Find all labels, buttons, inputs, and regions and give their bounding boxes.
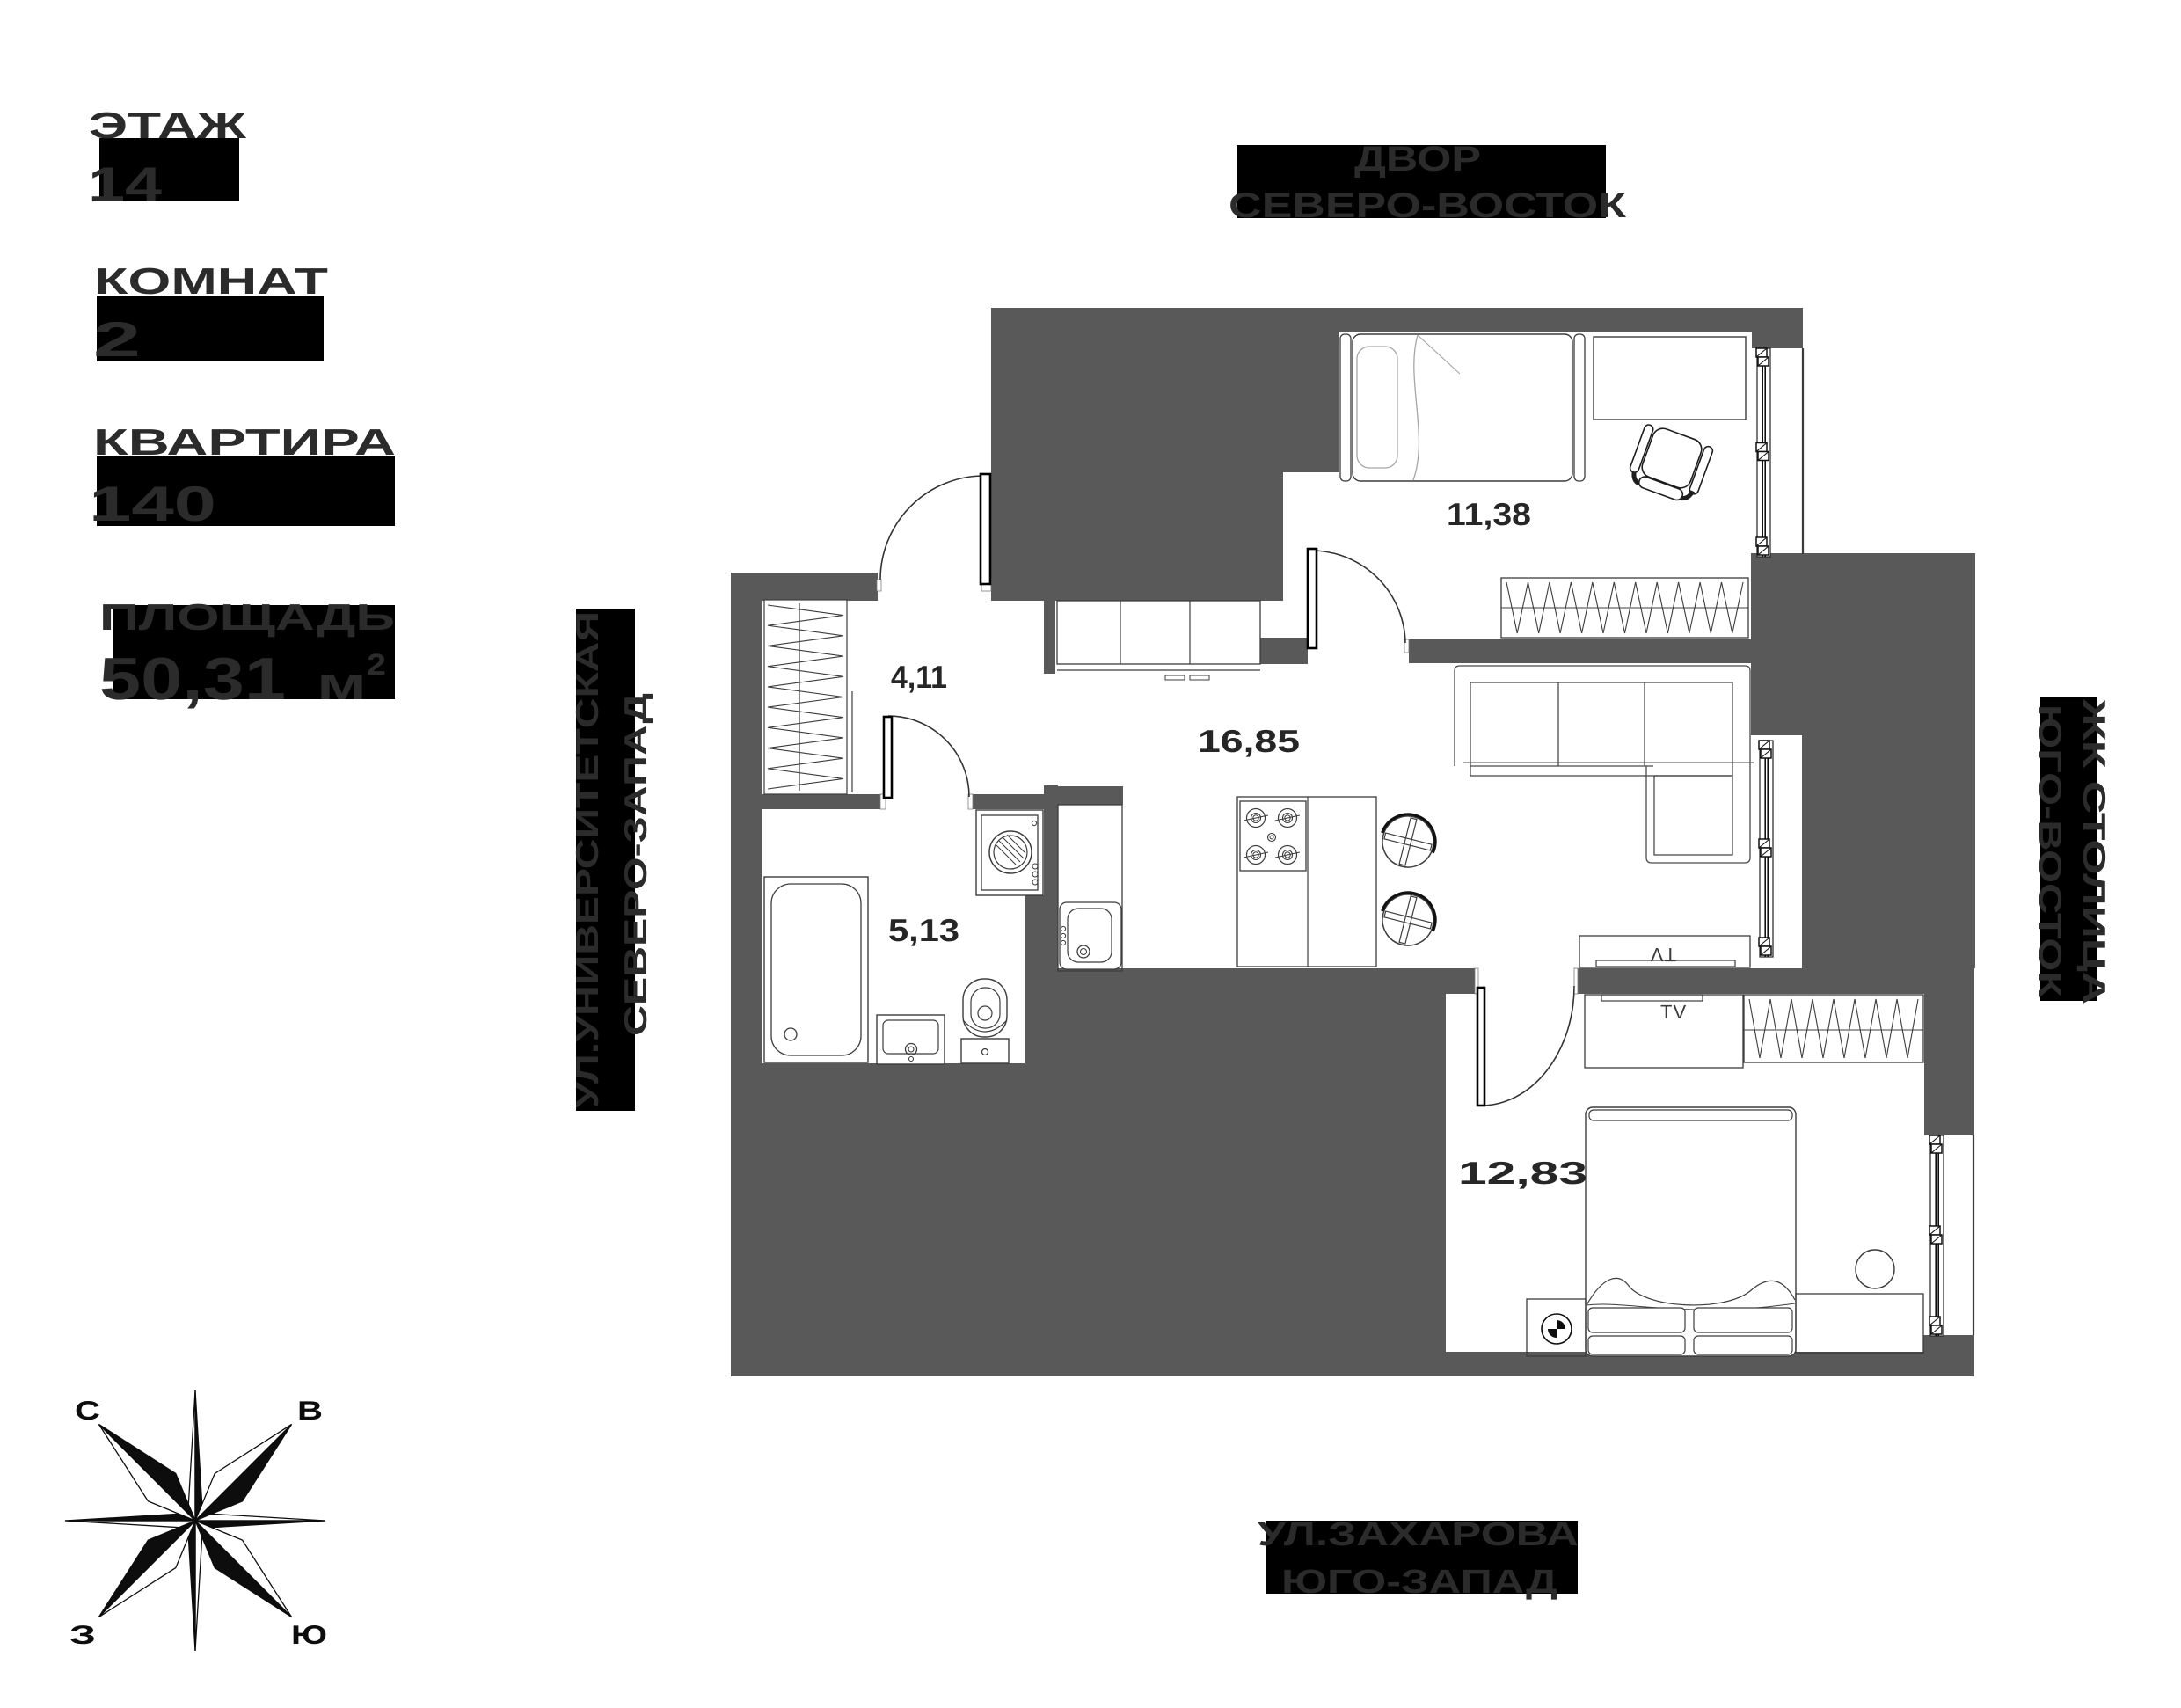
svg-text:5,13: 5,13	[888, 912, 959, 948]
svg-text:11,38: 11,38	[1447, 496, 1531, 532]
svg-text:КОМНАТ: КОМНАТ	[94, 260, 329, 302]
svg-text:4,11: 4,11	[891, 659, 947, 695]
svg-text:СЕВЕРО-ЗАПАД: СЕВЕРО-ЗАПАД	[617, 693, 653, 1036]
svg-text:З: З	[69, 1621, 96, 1650]
svg-text:Ю: Ю	[291, 1621, 327, 1650]
svg-text:TV: TV	[1660, 1001, 1687, 1023]
svg-text:12,83: 12,83	[1458, 1155, 1587, 1191]
svg-text:СЕВЕРО-ВОСТОК: СЕВЕРО-ВОСТОК	[1229, 186, 1627, 225]
svg-text:16,85: 16,85	[1198, 723, 1300, 759]
svg-text:ДВОР: ДВОР	[1354, 140, 1481, 179]
svg-text:м: м	[317, 659, 367, 710]
svg-text:ЮГО-ЗАПАД: ЮГО-ЗАПАД	[1281, 1564, 1557, 1601]
svg-text:2: 2	[93, 311, 141, 367]
svg-text:УЛ.ЗАХАРОВА: УЛ.ЗАХАРОВА	[1258, 1516, 1579, 1553]
svg-text:ЮГО-ВОСТОК: ЮГО-ВОСТОК	[2032, 704, 2068, 998]
svg-text:УЛ.УНИВЕРСИТЕТСКАЯ: УЛ.УНИВЕРСИТЕТСКАЯ	[569, 611, 605, 1108]
svg-text:140: 140	[89, 476, 216, 531]
svg-text:ПЛОЩАДЬ: ПЛОЩАДЬ	[99, 596, 395, 638]
svg-text:ЭТАЖ: ЭТАЖ	[89, 105, 248, 146]
svg-text:TV: TV	[1650, 944, 1676, 966]
svg-text:50,31: 50,31	[99, 646, 286, 712]
svg-text:14: 14	[88, 157, 162, 212]
svg-text:2: 2	[367, 648, 386, 682]
svg-text:В: В	[297, 1397, 323, 1426]
svg-text:КВАРТИРА: КВАРТИРА	[93, 421, 396, 463]
svg-text:ЖК СТОЛИЦА: ЖК СТОЛИЦА	[2076, 698, 2112, 1004]
svg-text:С: С	[75, 1397, 100, 1426]
